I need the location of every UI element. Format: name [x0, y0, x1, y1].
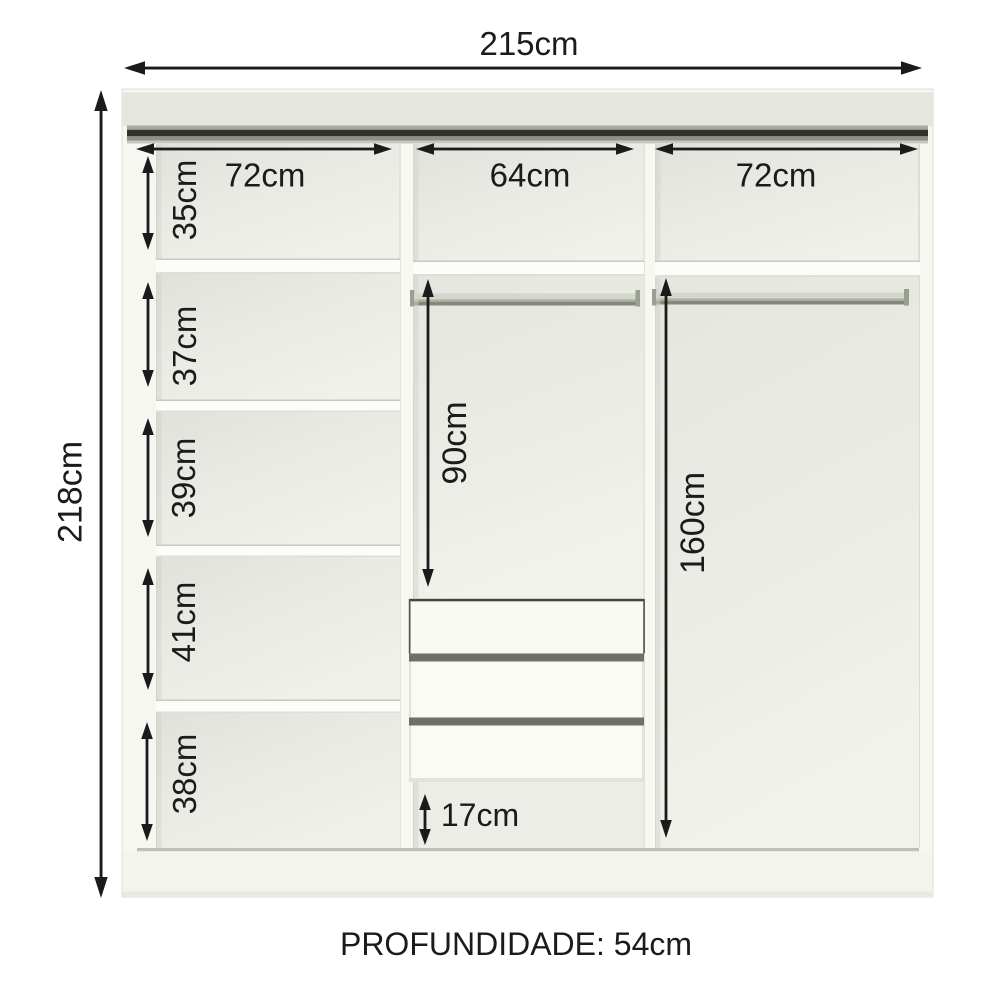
svg-text:35cm: 35cm	[166, 160, 203, 241]
svg-text:160cm: 160cm	[674, 472, 712, 574]
svg-text:90cm: 90cm	[436, 401, 474, 484]
svg-text:37cm: 37cm	[166, 306, 203, 387]
svg-text:72cm: 72cm	[736, 157, 817, 194]
svg-text:72cm: 72cm	[225, 157, 306, 194]
svg-text:215cm: 215cm	[479, 25, 578, 62]
svg-text:41cm: 41cm	[165, 582, 202, 663]
svg-text:218cm: 218cm	[52, 441, 90, 543]
svg-text:39cm: 39cm	[165, 438, 202, 519]
svg-text:38cm: 38cm	[166, 734, 203, 815]
svg-text:17cm: 17cm	[441, 797, 519, 833]
svg-text:64cm: 64cm	[490, 157, 571, 194]
svg-text:PROFUNDIDADE: 54cm: PROFUNDIDADE: 54cm	[340, 926, 692, 962]
